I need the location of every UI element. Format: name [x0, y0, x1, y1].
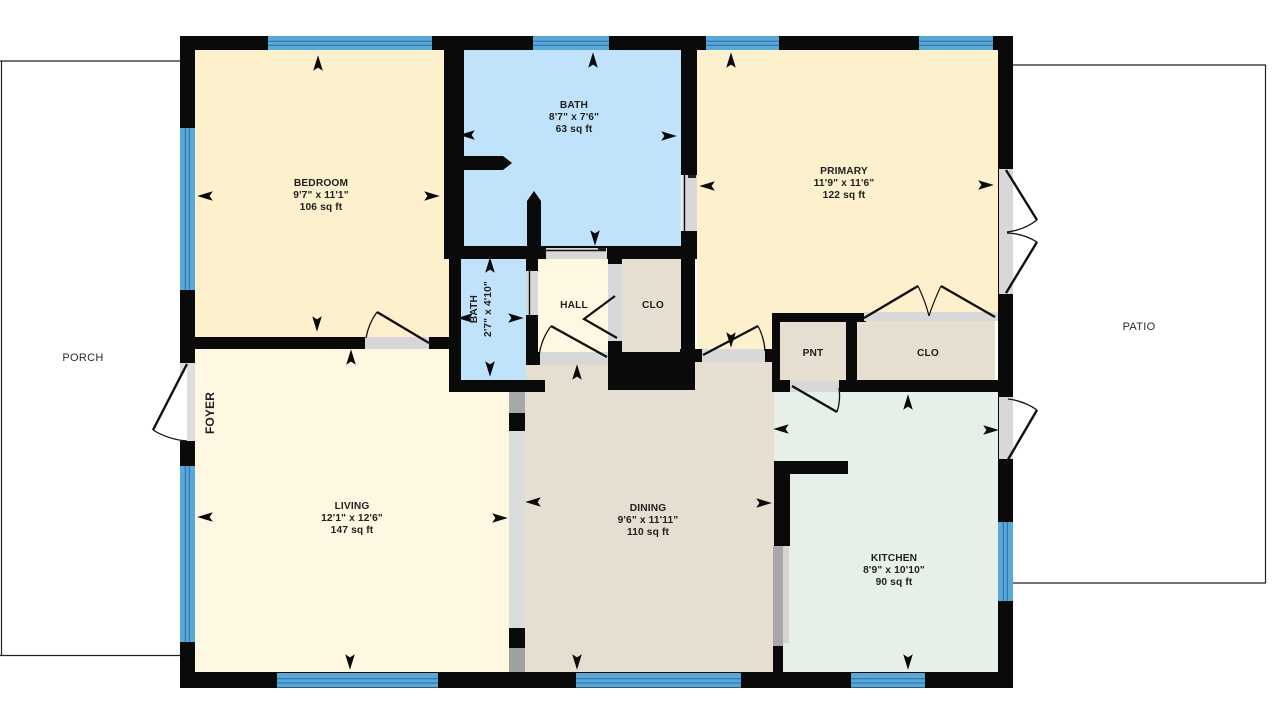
svg-text:9'6" x 11'11": 9'6" x 11'11": [618, 515, 679, 526]
svg-text:12'1" x 12'6": 12'1" x 12'6": [321, 513, 383, 524]
svg-text:63 sq ft: 63 sq ft: [556, 124, 593, 135]
svg-text:PATIO: PATIO: [1123, 321, 1156, 333]
svg-text:8'7" x 7'6": 8'7" x 7'6": [549, 112, 599, 123]
svg-text:11'9" x 11'6": 11'9" x 11'6": [814, 178, 875, 189]
svg-text:2'7" x 4'10": 2'7" x 4'10": [483, 281, 494, 337]
svg-text:CLO: CLO: [642, 300, 664, 311]
svg-text:LIVING: LIVING: [335, 501, 370, 512]
svg-text:8'9" x 10'10": 8'9" x 10'10": [863, 565, 925, 576]
svg-text:PORCH: PORCH: [62, 352, 103, 364]
svg-text:BATH: BATH: [469, 295, 480, 323]
svg-text:PRIMARY: PRIMARY: [820, 166, 868, 177]
svg-text:90 sq ft: 90 sq ft: [876, 577, 913, 588]
svg-text:110 sq ft: 110 sq ft: [627, 527, 670, 538]
svg-text:9'7" x 11'1": 9'7" x 11'1": [293, 190, 348, 201]
svg-text:122 sq ft: 122 sq ft: [823, 190, 866, 201]
svg-text:HALL: HALL: [560, 300, 588, 311]
svg-text:147 sq ft: 147 sq ft: [331, 525, 374, 536]
svg-text:KITCHEN: KITCHEN: [871, 553, 917, 564]
svg-text:106 sq ft: 106 sq ft: [300, 202, 343, 213]
svg-text:FOYER: FOYER: [203, 392, 217, 434]
svg-text:BATH: BATH: [560, 100, 588, 111]
svg-text:CLO: CLO: [917, 348, 939, 359]
svg-text:BEDROOM: BEDROOM: [294, 178, 348, 189]
svg-text:PNT: PNT: [803, 348, 824, 359]
svg-text:DINING: DINING: [630, 503, 667, 514]
